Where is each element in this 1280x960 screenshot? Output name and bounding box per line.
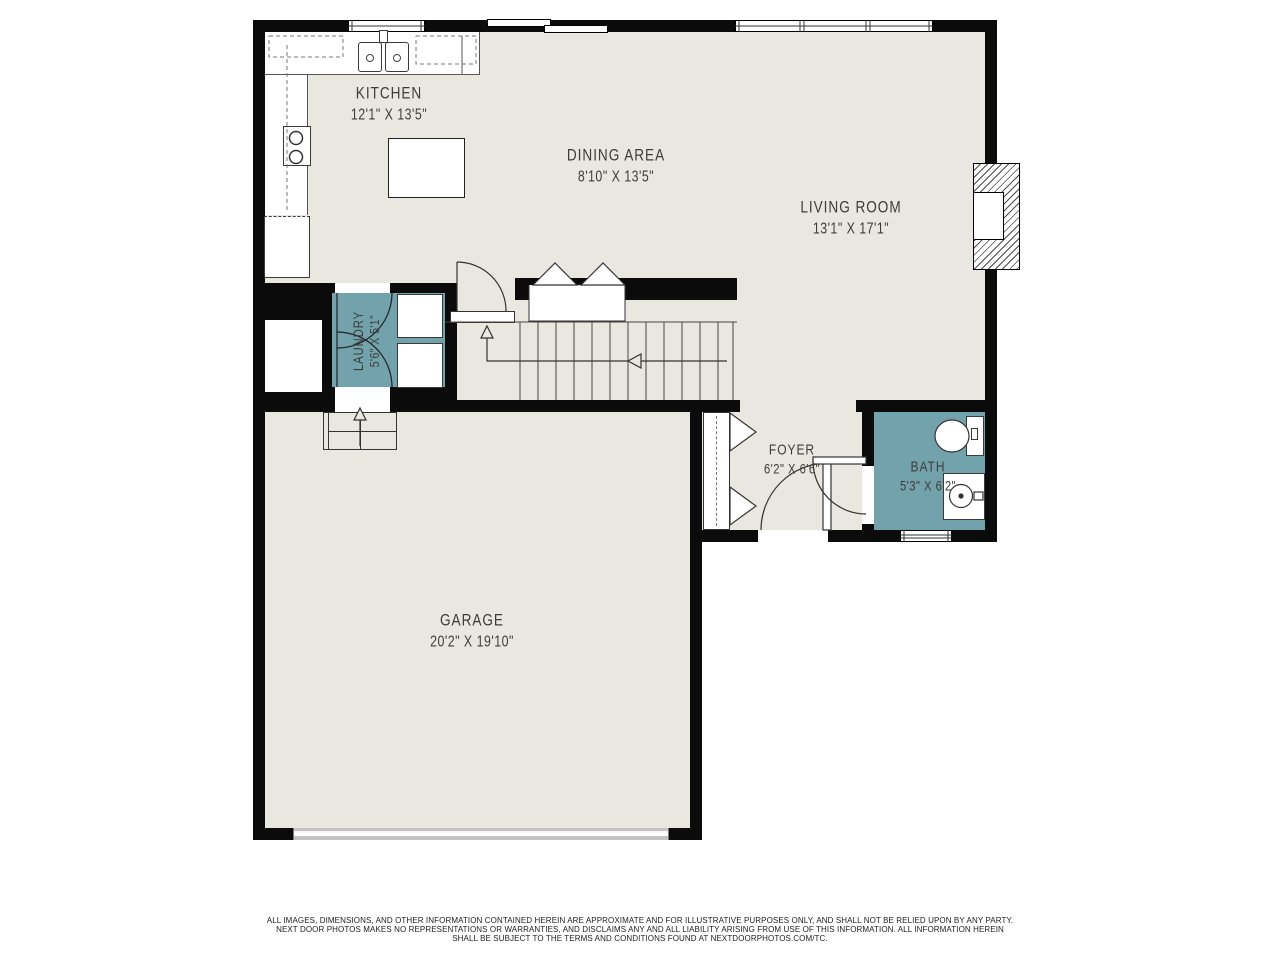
room-dims: 5'6" X 5'1"	[367, 311, 382, 371]
room-dims: 13'1" X 17'1"	[800, 221, 901, 239]
sliding-door-panel-outer	[487, 19, 551, 27]
room-label-dining: DINING AREA 8'10" X 13'5"	[567, 146, 665, 187]
kitchen-sink-basin-left	[358, 42, 382, 72]
room-name: GARAGE	[430, 611, 514, 631]
room-name: LIVING ROOM	[800, 198, 901, 218]
room-name: BATH	[900, 459, 956, 476]
foyer-closet-track	[716, 416, 717, 526]
room-name: FOYER	[764, 442, 820, 459]
stove	[283, 126, 311, 166]
room-label-bath: BATH 5'3" X 6'2"	[900, 459, 956, 494]
toilet-button	[971, 428, 978, 440]
kitchen-island	[388, 138, 465, 198]
washer	[397, 294, 443, 338]
room-dims: 12'1" X 13'5"	[351, 107, 427, 125]
room-name: LAUNDRY	[350, 311, 366, 371]
room-dims: 6'2" X 6'6"	[764, 461, 820, 477]
room-dims: 5'3" X 6'2"	[900, 478, 956, 494]
room-label-garage: GARAGE 20'2" X 19'10"	[430, 611, 514, 652]
wall-garage-left	[253, 412, 265, 840]
sliding-door-panel-inner	[544, 25, 608, 33]
room-dims: 20'2" X 19'10"	[430, 634, 514, 652]
laundry-door-top-gap	[335, 283, 390, 293]
laundry-door-bottom-gap	[335, 387, 390, 412]
kitchen-sink-basin-right	[385, 42, 409, 72]
wall-right	[985, 20, 997, 542]
room-dims: 8'10" X 13'5"	[567, 169, 665, 187]
garage-steps-tread	[329, 431, 396, 432]
kitchen-faucet	[379, 30, 388, 43]
bath-doorway-gap	[862, 466, 874, 524]
refrigerator	[264, 216, 310, 278]
front-door-threshold	[758, 530, 828, 542]
dryer	[397, 343, 443, 388]
living-window	[735, 20, 933, 32]
bath-window	[900, 530, 952, 542]
room-label-living: LIVING ROOM 13'1" X 17'1"	[800, 198, 901, 239]
wall-garage-right	[690, 400, 702, 840]
wall-bath-top	[856, 400, 997, 412]
stair-closet-interior	[529, 285, 625, 322]
disclaimer: ALL IMAGES, DIMENSIONS, AND OTHER INFORM…	[240, 917, 1040, 943]
room-label-laundry: LAUNDRY 5'6" X 5'1"	[350, 311, 382, 371]
room-name: KITCHEN	[351, 84, 427, 104]
room-label-kitchen: KITCHEN 12'1" X 13'5"	[351, 84, 427, 125]
floor-plan: KITCHEN 12'1" X 13'5" DINING AREA 8'10" …	[0, 0, 1280, 960]
stairs-door-threshold	[450, 311, 515, 323]
fireplace-firebox	[973, 192, 1004, 240]
disclaimer-line: SHALL BE SUBJECT TO THE TERMS AND CONDIT…	[240, 935, 1040, 944]
room-name: DINING AREA	[567, 146, 665, 166]
exterior-notch	[265, 320, 322, 392]
room-label-foyer: FOYER 6'2" X 6'6"	[764, 442, 820, 477]
garage-door	[293, 828, 669, 840]
garage-steps	[323, 412, 397, 450]
wall-garage-top	[253, 400, 740, 412]
